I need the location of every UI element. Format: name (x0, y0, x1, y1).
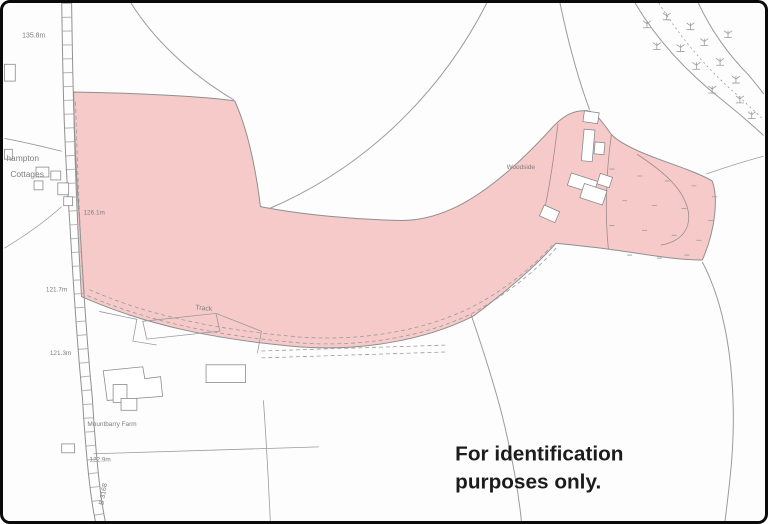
disclaimer-line1: For identification (455, 443, 623, 466)
cottages-label-line2: Cottages (10, 169, 44, 179)
disclaimer-line2: purposes only. (455, 470, 601, 493)
woodside-label: Woodside (507, 164, 536, 171)
spot-height-label: 126.1m (83, 210, 104, 217)
spot-height-label: 122.9m (89, 457, 110, 464)
cottages-label-line1: hampton (6, 153, 39, 163)
spot-height-label: 121.7m (46, 287, 67, 294)
spot-height-label: 135.8m (22, 33, 45, 40)
spot-height-label: 121.3m (50, 350, 71, 357)
farm-label: Mountbarry Farm (87, 421, 136, 428)
map-frame: 135.8m hampton Cottages 126.1m 121.7m 12… (0, 0, 768, 524)
site-plan-map: 135.8m hampton Cottages 126.1m 121.7m 12… (3, 3, 765, 521)
